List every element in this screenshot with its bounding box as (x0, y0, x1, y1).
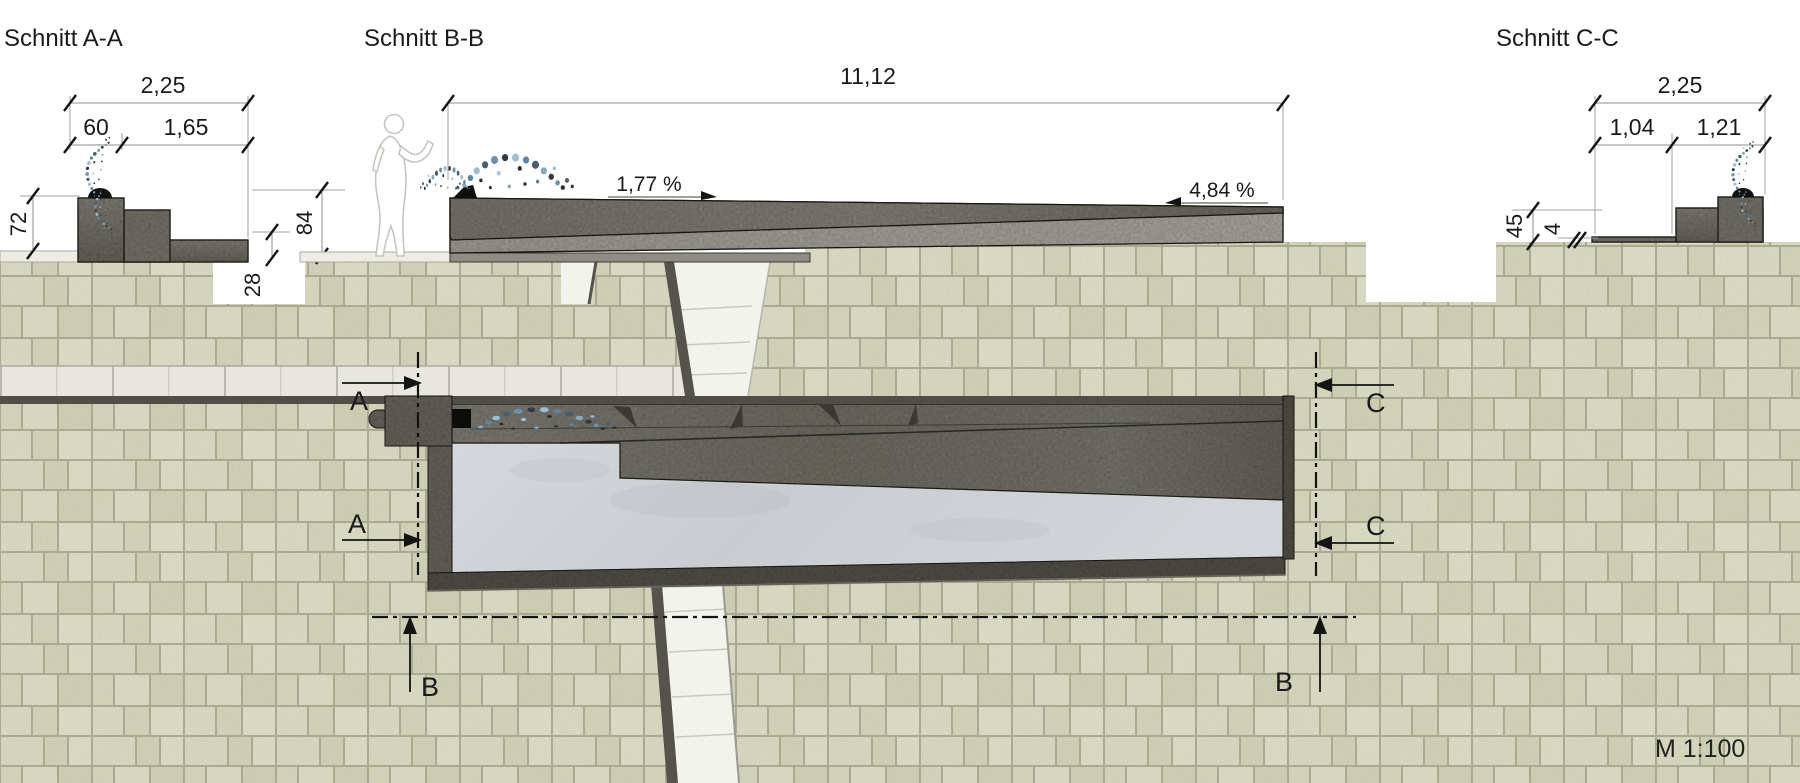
section-b-title: Schnitt B-B (364, 25, 484, 52)
plan-top-edge (0, 396, 1294, 404)
dim-c-seg2: 1,21 (1697, 114, 1742, 140)
plan-left-wall (428, 446, 452, 573)
plan-marker-b-right: B (1275, 667, 1293, 697)
slope-end-text: 4,84 % (1189, 179, 1254, 202)
section-a-title: Schnitt A-A (4, 25, 123, 52)
dim-c-total: 2,25 (1658, 72, 1703, 98)
plan-marker-c-bottom: C (1366, 511, 1386, 541)
section-a-walkway-strip (0, 251, 78, 262)
dim-a-height-step: 28 (240, 273, 265, 297)
plan-marker-b-left: B (421, 672, 439, 702)
dim-a-total: 2,25 (141, 72, 186, 98)
slope-start-text: 1,77 % (616, 173, 681, 196)
dim-a-seg2: 1,65 (164, 114, 209, 140)
plan-nozzle (452, 409, 471, 428)
plan-marker-a-top: A (350, 386, 368, 416)
section-b-walkway-strip (300, 252, 450, 262)
dim-b-total: 11,12 (840, 63, 896, 89)
white-notch-right (1366, 240, 1496, 302)
dim-a-height-left: 72 (6, 212, 31, 236)
plan-marker-c-top: C (1366, 388, 1386, 418)
dim-a-seg1: 60 (83, 114, 109, 140)
section-c-title: Schnitt C-C (1496, 25, 1619, 52)
dim-a-height-right: 84 (292, 211, 317, 235)
drawing-sheet: A A C C B B Schnitt A-A (0, 0, 1800, 783)
dim-c-seg1: 1,04 (1610, 114, 1655, 140)
plan-marker-a-bottom: A (348, 509, 366, 539)
section-b-base (450, 253, 810, 262)
plan-right-wall (1283, 396, 1294, 559)
technical-drawing: A A C C B B Schnitt A-A (0, 0, 1800, 783)
section-c-slab (1592, 237, 1676, 242)
dim-c-height-slab: 4 (1540, 223, 1565, 235)
plan-path-stub (561, 262, 596, 304)
dim-c-height-wall: 45 (1502, 214, 1527, 238)
scale-label: M 1:100 (1655, 735, 1745, 763)
